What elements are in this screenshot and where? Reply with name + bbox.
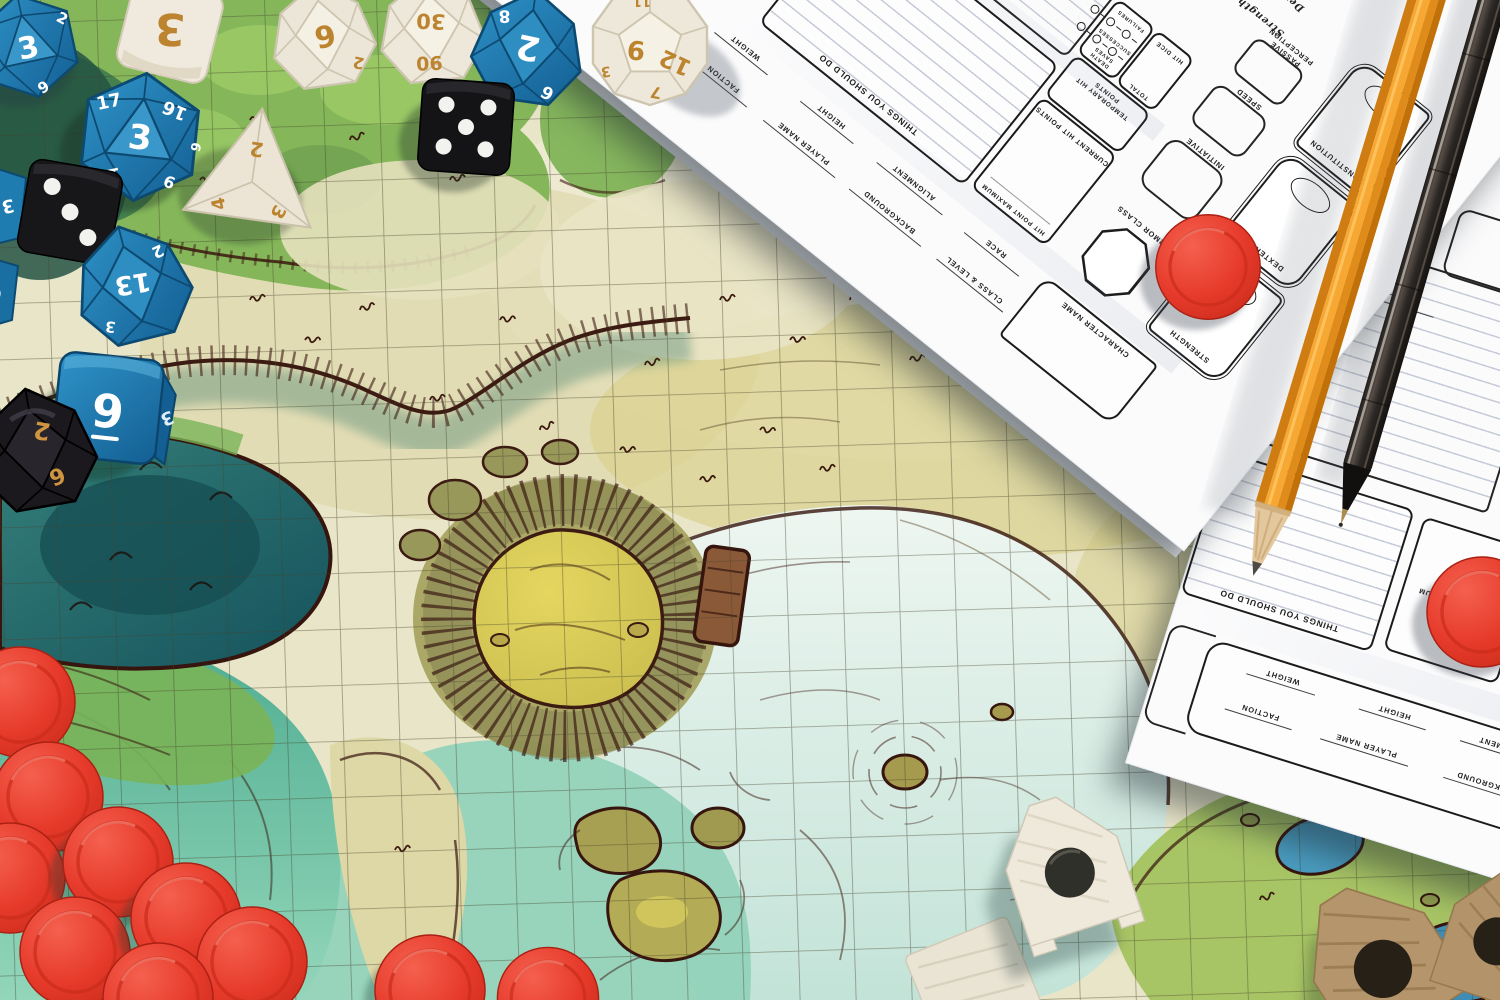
svg-text:3: 3 <box>154 2 186 54</box>
svg-text:11: 11 <box>633 0 651 8</box>
red-token <box>364 935 485 1000</box>
die-white-percentile: 30 90 <box>374 0 489 86</box>
tabletop-scene: BACKGROUND PLAYER NAME FACTION ALIGNMENT… <box>0 0 1500 1000</box>
svg-text:90: 90 <box>416 51 443 74</box>
svg-text:3: 3 <box>104 317 116 336</box>
svg-text:8: 8 <box>498 5 511 25</box>
svg-text:9: 9 <box>626 33 647 64</box>
game-pieces-layer: 3 2 6 3 2 4 3 6 2 30 90 2 8 6 9 12 7 3 1… <box>0 0 1500 1000</box>
red-token <box>0 647 75 757</box>
brown-house-token <box>1430 853 1500 1000</box>
red-token <box>1412 557 1500 677</box>
die-white-d10: 6 2 <box>265 0 381 92</box>
red-token <box>497 947 598 1000</box>
die-white-d12: 9 12 7 3 11 <box>593 0 757 135</box>
svg-text:30: 30 <box>416 9 446 34</box>
svg-text:6: 6 <box>0 284 2 303</box>
svg-text:3: 3 <box>126 117 154 159</box>
svg-text:6: 6 <box>89 381 126 438</box>
die-blue-d20-corner: 3 2 6 <box>0 0 88 117</box>
svg-text:13: 13 <box>112 265 152 300</box>
red-token <box>1140 215 1260 330</box>
die-white-d6: 3 <box>114 0 226 86</box>
die-black-d6-five <box>396 77 516 197</box>
